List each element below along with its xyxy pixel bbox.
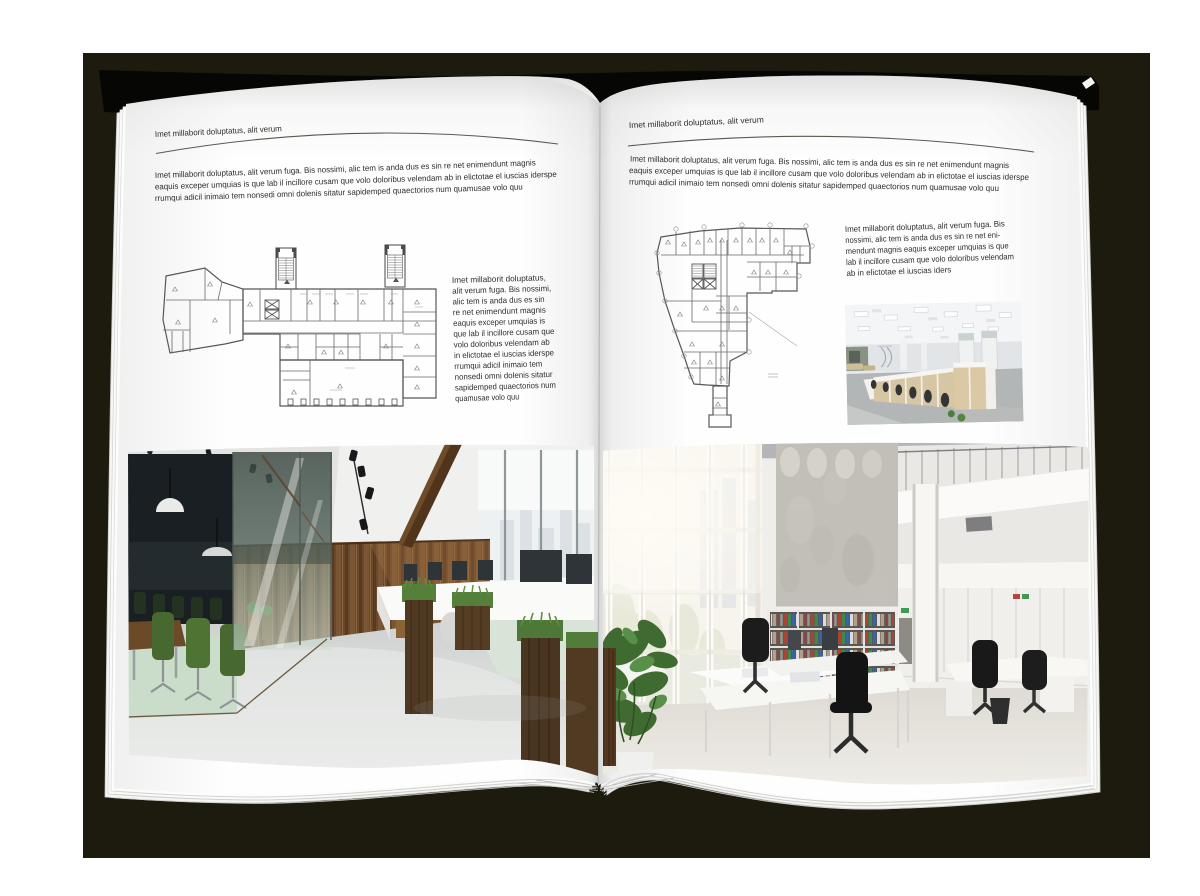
svg-text:quamusae volo quu: quamusae volo quu [455,391,520,403]
